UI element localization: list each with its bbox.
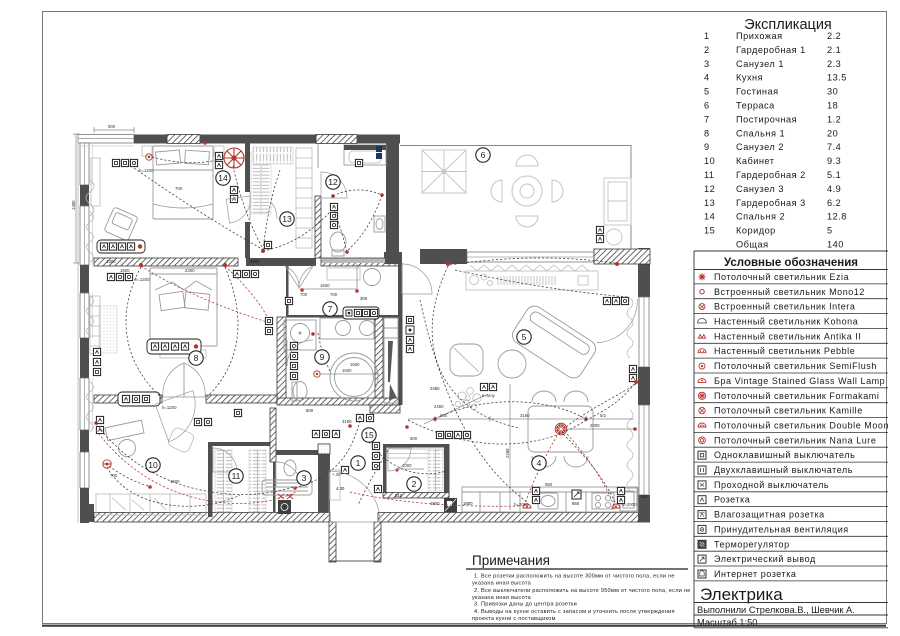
svg-text:510: 510 <box>395 493 403 498</box>
svg-text:950: 950 <box>572 501 580 506</box>
svg-text:1: 1 <box>704 31 710 41</box>
svg-text:700: 700 <box>110 473 118 478</box>
svg-text:600: 600 <box>410 436 418 441</box>
svg-text:Розетка: Розетка <box>714 495 750 505</box>
svg-text:7: 7 <box>328 304 333 314</box>
svg-text:4. Выводы на кухне оставить с: 4. Выводы на кухне оставить с запасом и … <box>474 609 675 615</box>
svg-text:5/2: 5/2 <box>600 413 607 418</box>
svg-text:Гардеробная 3: Гардеробная 3 <box>736 198 806 208</box>
svg-text:4: 4 <box>704 73 710 83</box>
svg-text:Потолочный светильник SemiFlus: Потолочный светильник SemiFlush <box>714 361 877 371</box>
svg-text:2.1: 2.1 <box>827 45 841 55</box>
svg-text:1600: 1600 <box>170 479 180 484</box>
svg-text:Терморегулятор: Терморегулятор <box>714 539 790 549</box>
svg-text:1800: 1800 <box>463 501 473 506</box>
svg-text:Гостиная: Гостиная <box>736 87 779 97</box>
svg-text:950: 950 <box>545 482 553 487</box>
svg-text:1000: 1000 <box>402 463 412 468</box>
svg-text:Гардеробная 1: Гардеробная 1 <box>736 45 806 55</box>
svg-text:Коридор: Коридор <box>736 226 776 236</box>
svg-text:Выполнили Стрелкова.В., Шевчик: Выполнили Стрелкова.В., Шевчик А. <box>697 605 855 615</box>
svg-text:Бра Vintage Stained Glass Wall: Бра Vintage Stained Glass Wall Lamp <box>714 376 885 386</box>
svg-text:8: 8 <box>704 128 710 138</box>
svg-text:1600: 1600 <box>342 368 352 373</box>
svg-text:13: 13 <box>282 214 292 224</box>
svg-text:14: 14 <box>704 212 715 222</box>
svg-text:Общая: Общая <box>736 240 769 250</box>
svg-text:13.5: 13.5 <box>827 73 847 83</box>
svg-text:6: 6 <box>481 150 486 160</box>
svg-text:Принудительная вентиляция: Принудительная вентиляция <box>714 524 849 534</box>
svg-text:1800: 1800 <box>430 501 440 506</box>
svg-text:7: 7 <box>704 114 710 124</box>
svg-text:2: 2 <box>412 479 417 489</box>
svg-text:1.2: 1.2 <box>827 114 841 124</box>
svg-text:Кухня: Кухня <box>736 73 763 83</box>
svg-text:11: 11 <box>704 170 715 180</box>
svg-text:2000: 2000 <box>590 423 600 428</box>
svg-text:Потолочный светильник Formakam: Потолочный светильник Formakami <box>714 391 879 401</box>
svg-text:Прихожая: Прихожая <box>736 31 783 41</box>
svg-text:500: 500 <box>306 408 314 413</box>
svg-text:12.8: 12.8 <box>827 212 847 222</box>
svg-text:Одноклавишный выключатель: Одноклавишный выключатель <box>714 450 855 460</box>
svg-text:14: 14 <box>218 173 228 183</box>
svg-text:5: 5 <box>827 226 833 236</box>
svg-text:h=1200: h=1200 <box>162 405 177 410</box>
svg-text:12: 12 <box>704 184 715 194</box>
svg-text:900: 900 <box>108 124 116 129</box>
svg-text:140: 140 <box>827 240 844 250</box>
svg-text:Потолочный светильник Ezia: Потолочный светильник Ezia <box>714 272 849 282</box>
svg-text:2: 2 <box>704 45 710 55</box>
svg-text:110: 110 <box>640 494 647 499</box>
svg-text:3. Привязки даны до центра роз: 3. Привязки даны до центра розетки <box>474 602 577 608</box>
svg-text:15: 15 <box>364 430 374 440</box>
svg-text:3180: 3180 <box>342 419 352 424</box>
svg-text:2450: 2450 <box>430 386 440 391</box>
svg-text:1400: 1400 <box>71 200 76 210</box>
svg-text:Кабинет: Кабинет <box>736 156 775 166</box>
svg-text:6: 6 <box>704 101 710 111</box>
svg-text:700: 700 <box>300 292 308 297</box>
svg-text:700: 700 <box>330 292 338 297</box>
svg-text:13: 13 <box>704 198 715 208</box>
svg-text:3: 3 <box>302 473 307 483</box>
svg-text:600: 600 <box>440 413 448 418</box>
svg-text:1300: 1300 <box>106 259 116 264</box>
svg-text:1: 1 <box>356 458 361 468</box>
svg-text:Потолочный светильник Nana Lur: Потолочный светильник Nana Lure <box>714 435 876 445</box>
svg-text:Настенный светильник Pebble: Настенный светильник Pebble <box>714 346 855 356</box>
svg-text:Условные обозначения: Условные обозначения <box>724 257 858 269</box>
svg-text:проекта кухни с поставщиком: проекта кухни с поставщиком <box>472 616 556 622</box>
svg-text:2. Все выключатели расположить: 2. Все выключатели расположить на высоте… <box>474 588 691 594</box>
svg-text:Электрика: Электрика <box>700 585 783 604</box>
svg-text:h=2000: h=2000 <box>514 502 529 507</box>
svg-text:Гардеробная 2: Гардеробная 2 <box>736 170 806 180</box>
svg-text:Настенный светильник Antika I: Настенный светильник Antika II <box>714 331 861 341</box>
svg-text:указана иная высота: указана иная высота <box>472 581 532 587</box>
svg-text:4.9: 4.9 <box>827 184 841 194</box>
svg-text:2288: 2288 <box>505 448 510 458</box>
svg-text:5: 5 <box>704 87 710 97</box>
svg-text:20: 20 <box>827 128 838 138</box>
svg-text:h=1200: h=1200 <box>135 277 150 282</box>
svg-text:7.4: 7.4 <box>827 142 841 152</box>
svg-text:5: 5 <box>522 332 527 342</box>
svg-text:в полу: в полу <box>482 393 496 398</box>
svg-text:4: 4 <box>537 458 542 468</box>
svg-text:2450: 2450 <box>434 404 444 409</box>
svg-text:Санузел 2: Санузел 2 <box>736 142 784 152</box>
svg-text:30: 30 <box>827 87 838 97</box>
svg-text:4.30: 4.30 <box>336 486 345 491</box>
svg-text:6.2: 6.2 <box>827 198 841 208</box>
svg-text:10: 10 <box>148 460 158 470</box>
svg-text:700: 700 <box>175 186 183 191</box>
svg-text:Электрический вывод: Электрический вывод <box>714 554 816 564</box>
svg-text:Потолочный светильник Double M: Потолочный светильник Double Moon <box>714 421 889 431</box>
svg-text:1500: 1500 <box>320 283 330 288</box>
svg-text:Потолочный светильник Kamille: Потолочный светильник Kamille <box>714 406 863 416</box>
svg-text:Влагозащитная розетка: Влагозащитная розетка <box>714 510 825 520</box>
svg-text:Спальня 1: Спальня 1 <box>736 128 785 138</box>
svg-text:3200: 3200 <box>250 259 260 264</box>
svg-text:15: 15 <box>704 226 715 236</box>
svg-text:1. Все розетки расположить на: 1. Все розетки расположить на высоте 300… <box>474 574 675 580</box>
svg-text:5.1: 5.1 <box>827 170 841 180</box>
svg-text:2.3: 2.3 <box>827 59 841 69</box>
svg-text:Двухклавишный выключатель: Двухклавишный выключатель <box>714 465 853 475</box>
svg-text:Терраса: Терраса <box>736 101 775 111</box>
svg-text:3: 3 <box>704 59 710 69</box>
svg-text:Проходной выключатель: Проходной выключатель <box>714 480 829 490</box>
svg-text:Санузел 3: Санузел 3 <box>736 184 784 194</box>
svg-text:1500: 1500 <box>120 268 130 273</box>
svg-text:9: 9 <box>320 352 325 362</box>
svg-text:9: 9 <box>704 142 710 152</box>
svg-text:12: 12 <box>328 177 338 187</box>
svg-text:Примечания: Примечания <box>472 553 550 568</box>
svg-text:Интернет розетка: Интернет розетка <box>714 569 796 579</box>
svg-text:Настенный светильник Kohona: Настенный светильник Kohona <box>714 317 858 327</box>
svg-text:h=2000: h=2000 <box>622 502 637 507</box>
svg-text:10: 10 <box>704 156 715 166</box>
svg-text:указана иная высота: указана иная высота <box>472 595 532 601</box>
svg-text:Санузел 1: Санузел 1 <box>736 59 784 69</box>
svg-text:18: 18 <box>827 101 838 111</box>
svg-text:9.3: 9.3 <box>827 156 841 166</box>
svg-text:h=1200: h=1200 <box>139 168 154 173</box>
svg-text:11: 11 <box>232 471 241 481</box>
svg-text:8: 8 <box>194 353 199 363</box>
svg-text:Встроенный светильник Intera: Встроенный светильник Intera <box>714 302 855 312</box>
svg-text:2.2: 2.2 <box>827 31 841 41</box>
svg-text:1600: 1600 <box>350 362 360 367</box>
svg-text:2300: 2300 <box>185 268 195 273</box>
svg-text:3160: 3160 <box>520 413 530 418</box>
svg-text:Постирочная: Постирочная <box>736 114 797 124</box>
svg-text:300: 300 <box>360 296 368 301</box>
svg-text:Встроенный светильник Mono12: Встроенный светильник Mono12 <box>714 287 865 297</box>
svg-text:+.30: +.30 <box>332 472 341 477</box>
svg-text:Спальня 2: Спальня 2 <box>736 212 785 222</box>
